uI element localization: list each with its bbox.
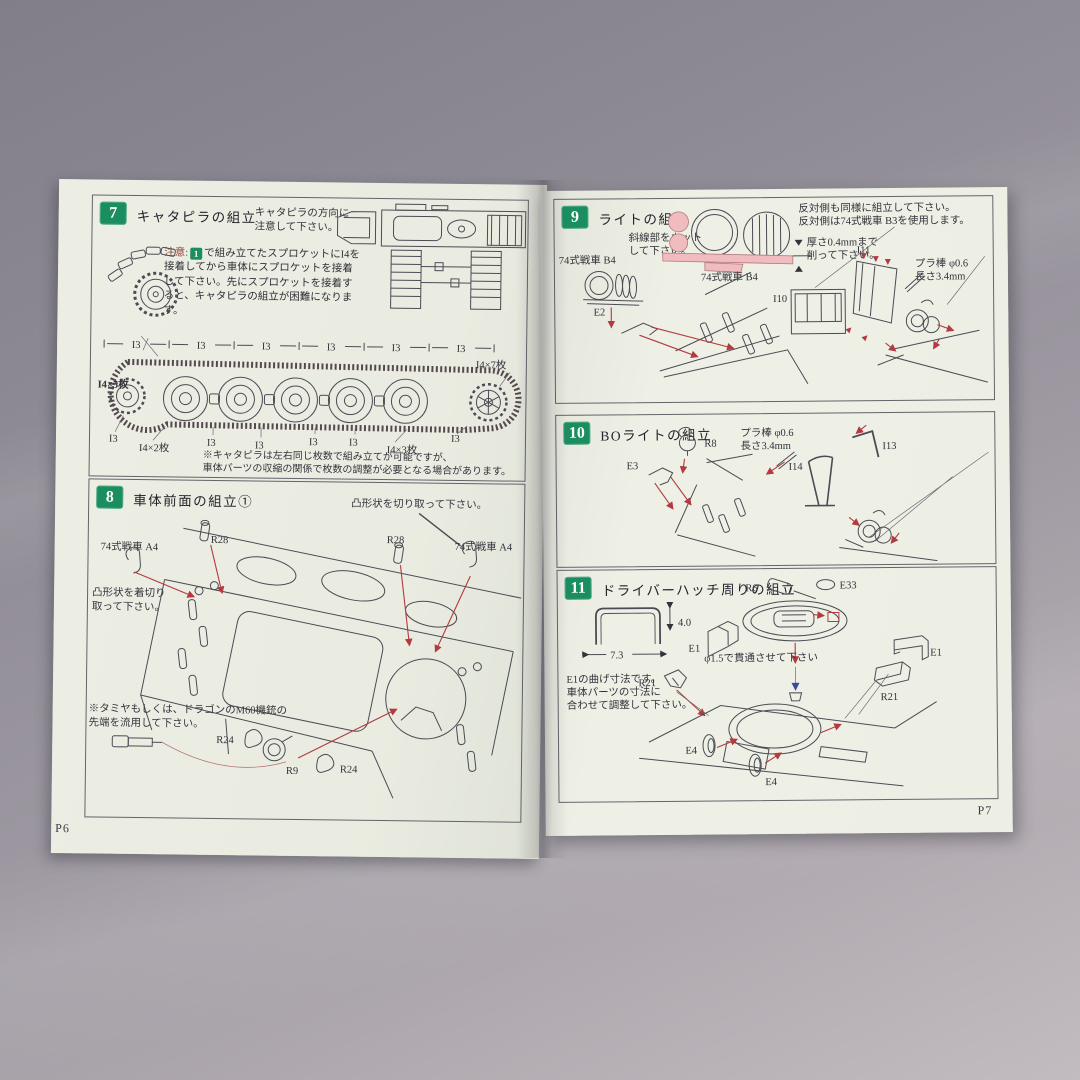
svg-text:R28: R28 [387, 535, 405, 546]
svg-text:I3: I3 [457, 344, 466, 355]
svg-text:R24: R24 [216, 735, 234, 746]
svg-text:I3: I3 [109, 434, 118, 445]
svg-text:E2: E2 [594, 307, 606, 318]
svg-text:I3: I3 [327, 342, 336, 353]
hull-front-assembly-diagram: 凸形状を切り取って下さい。 74式戦車 A4 R28 R28 74式戦車 A4 … [85, 479, 524, 821]
bo-light-assembly-diagram: R8 E3 プラ棒 φ0.6 長さ3.4mm [556, 412, 995, 567]
driver-hatch-assembly-diagram: 4.0 7.3 E1の曲げ寸法です。 車体パーツの寸法に 合わせて調整して下さい… [558, 567, 998, 802]
step-7-title: キャタピラの組立 [137, 205, 257, 226]
svg-text:R9: R9 [286, 766, 298, 777]
svg-text:E3: E3 [627, 461, 639, 472]
svg-text:R21: R21 [638, 678, 656, 689]
svg-text:プラ棒 φ0.6: プラ棒 φ0.6 [915, 256, 968, 269]
page-left: 7 キャタピラの組立 キャタピラの方向に 注意して下さい。 注意:1で組み立てた… [51, 179, 547, 859]
svg-text:I3: I3 [132, 340, 141, 351]
svg-text:R24: R24 [340, 765, 358, 776]
svg-text:E1: E1 [688, 644, 700, 655]
svg-text:E33: E33 [840, 580, 857, 591]
svg-text:凸形状を着切り: 凸形状を着切り [92, 585, 166, 599]
sprocket-drawing [99, 234, 200, 335]
light-assembly-diagram: 反対側も同様に組立して下さい。 反対側は74式戦車 B3を使用します。 斜線部を… [554, 196, 994, 403]
svg-text:I3: I3 [207, 438, 216, 449]
svg-text:74式戦車 A4: 74式戦車 A4 [101, 540, 159, 554]
svg-text:7.3: 7.3 [610, 650, 623, 661]
svg-text:反対側も同様に組立して下さい。: 反対側も同様に組立して下さい。 [798, 200, 955, 214]
page-number-right: P7 [978, 803, 993, 818]
svg-text:取って下さい。: 取って下さい。 [92, 600, 165, 613]
svg-text:I14: I14 [789, 462, 804, 473]
svg-text:反対側は74式戦車 B3を使用します。: 反対側は74式戦車 B3を使用します。 [798, 213, 969, 227]
svg-text:I4×7枚: I4×7枚 [476, 358, 507, 371]
svg-text:I3: I3 [451, 434, 460, 445]
svg-text:I3: I3 [262, 342, 271, 353]
svg-text:E1: E1 [930, 648, 942, 659]
photo-of-instruction-booklet: 7 キャタピラの組立 キャタピラの方向に 注意して下さい。 注意:1で組み立てた… [0, 0, 1080, 1080]
svg-text:R8: R8 [704, 439, 716, 450]
step-9-panel: 9 ライトの組立 反対側も同様に組立して下さい。 反対側は74式戦車 B3を使用… [553, 195, 995, 404]
svg-text:凸形状を切り取って下さい。: 凸形状を切り取って下さい。 [351, 497, 487, 512]
step-7-number-badge: 7 [100, 202, 127, 225]
svg-text:I10: I10 [773, 294, 787, 305]
svg-text:I4×5枚: I4×5枚 [98, 378, 130, 391]
step-10-panel: 10 BOライトの組立 R8 E3 [555, 411, 996, 568]
svg-text:I3: I3 [349, 438, 358, 449]
svg-text:E4: E4 [685, 746, 698, 757]
svg-text:R6: R6 [745, 583, 757, 594]
tank-top-view-drawing [335, 203, 528, 313]
svg-text:I4×2枚: I4×2枚 [139, 441, 170, 454]
svg-text:※タミヤもしくは、ドラゴンのM60機銃の: ※タミヤもしくは、ドラゴンのM60機銃の [89, 701, 287, 716]
svg-text:R21: R21 [881, 692, 899, 703]
svg-text:長さ3.4mm: 長さ3.4mm [915, 270, 966, 282]
svg-text:プラ棒 φ0.6: プラ棒 φ0.6 [740, 426, 793, 439]
svg-text:74式戦車 B4: 74式戦車 B4 [559, 253, 617, 267]
track-footnote: ※キャタピラは左右同じ枚数で組み立てが可能ですが、 車体パーツの収縮の関係で枚数… [203, 449, 512, 479]
page-right: 9 ライトの組立 反対側も同様に組立して下さい。 反対側は74式戦車 B3を使用… [540, 187, 1013, 836]
svg-text:I13: I13 [882, 441, 896, 452]
step-8-panel: 8 車体前面の組立① 凸形状を切り取って下さい。 74式戦車 A4 R28 R2… [84, 478, 525, 822]
svg-text:長さ3.4mm: 長さ3.4mm [740, 440, 791, 452]
svg-text:I3: I3 [197, 341, 206, 352]
track-side-view-diagram: I3 I3 I3 I3 I3 I3 [95, 336, 521, 459]
step-7-panel: 7 キャタピラの組立 キャタピラの方向に 注意して下さい。 注意:1で組み立てた… [89, 194, 529, 481]
svg-text:φ1.5で貫通させて下さい: φ1.5で貫通させて下さい [704, 652, 818, 665]
svg-text:先端を流用して下さい。: 先端を流用して下さい。 [88, 715, 203, 729]
svg-text:合わせて調整して下さい。: 合わせて調整して下さい。 [567, 698, 693, 712]
svg-text:4.0: 4.0 [678, 618, 691, 629]
svg-text:I3: I3 [392, 343, 401, 354]
svg-text:I3: I3 [309, 437, 318, 448]
page-number-left: P6 [55, 821, 70, 836]
step-11-panel: 11 ドライバーハッチ周りの組立 [557, 566, 999, 803]
svg-text:E4: E4 [765, 777, 778, 788]
